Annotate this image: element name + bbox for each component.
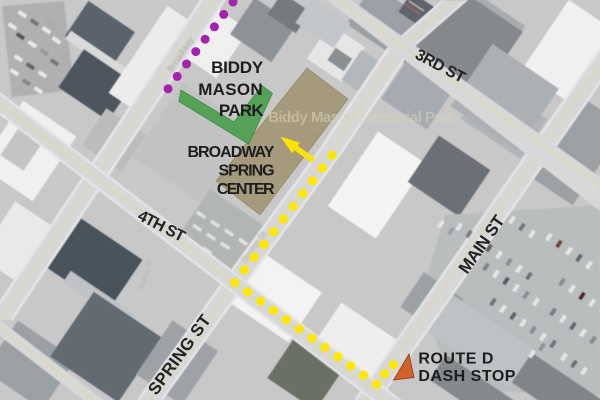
svg-text:Biddy Mason Memorial Park: Biddy Mason Memorial Park [268,109,457,126]
svg-text:BIDDY: BIDDY [211,58,264,77]
svg-text:DASH STOP: DASH STOP [418,368,516,385]
svg-text:SPRING: SPRING [218,163,274,180]
svg-text:CENTER: CENTER [217,181,275,198]
svg-text:ROUTE D: ROUTE D [418,351,494,368]
svg-text:PARK: PARK [219,101,265,120]
svg-text:BROADWAY: BROADWAY [187,144,274,161]
svg-text:MASON: MASON [198,80,263,99]
